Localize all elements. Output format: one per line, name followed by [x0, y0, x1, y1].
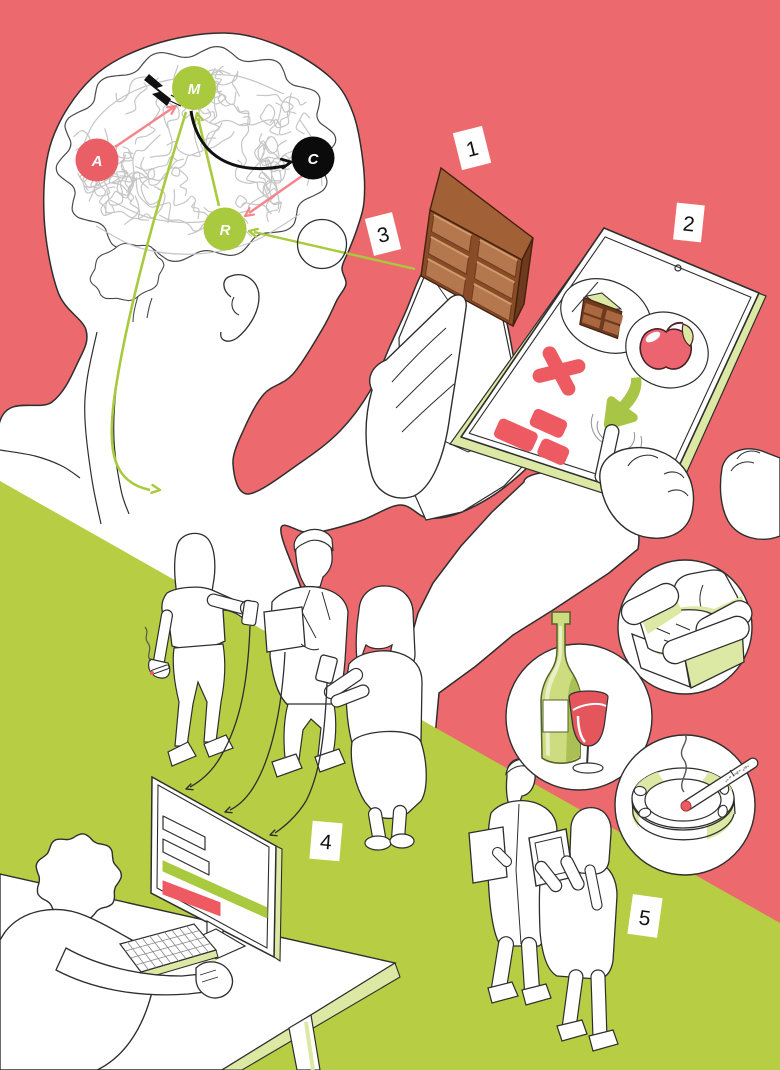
svg-text:C: C: [308, 151, 320, 168]
svg-text:M: M: [188, 81, 201, 98]
svg-text:R: R: [220, 222, 231, 239]
svg-text:2: 2: [682, 212, 696, 236]
svg-text:A: A: [91, 153, 103, 170]
svg-text:4: 4: [319, 831, 333, 855]
